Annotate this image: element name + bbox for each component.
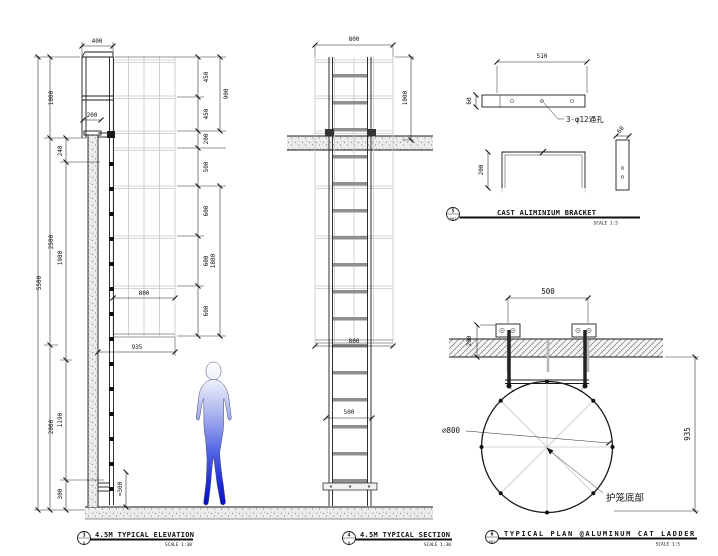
plan-ref-num: 6	[490, 532, 493, 538]
ground-strip	[85, 507, 433, 519]
section-title: 4.5M TYPICAL SECTION	[360, 531, 450, 539]
elevation-scale: SCALE 1:30	[165, 542, 192, 548]
dim-bottom-rung: ≈300	[117, 481, 124, 496]
section-cage-geometry	[315, 57, 393, 343]
bracket-scale: SCALE 1:5	[594, 221, 619, 227]
plan-cage-geometry	[480, 380, 615, 515]
dim-section-bottom-width: 800	[349, 338, 360, 345]
dim-hoop-c: 600	[203, 305, 210, 316]
plan-titleblock: 6 001 TYPICAL PLAN @ALUMINUM CAT LADDER …	[486, 530, 698, 548]
plan-ref-sheet: 001	[489, 539, 497, 544]
elevation-title: 4.5M TYPICAL ELEVATION	[95, 531, 194, 539]
dim-wall-upper: 1980	[57, 250, 64, 265]
dim-bracket-height: 200	[478, 164, 485, 175]
dim-drop-height: 935	[683, 427, 692, 441]
dim-cage-gap: 200	[203, 133, 210, 144]
dim-hoop-b: 600	[203, 255, 210, 266]
bracket-detail-view: 510 60 3-φ12通孔 200 60 5 001 CAST ALIMINI…	[447, 53, 641, 227]
dim-seg-bottom: 2000	[48, 419, 55, 434]
dim-bracket-length: 510	[537, 53, 548, 60]
human-figure	[196, 362, 231, 505]
section-titleblock: 4 0 4.5M TYPICAL SECTION SCALE 1:30	[343, 531, 453, 548]
section-dimensions: 800 1000 800 500	[315, 36, 414, 418]
dim-total-height: 5500	[36, 275, 43, 290]
section-view: 800 1000 800 500 4 0 4.5M TYPICAL SECTIO…	[287, 36, 452, 548]
plan-scale: SCALE 1:5	[656, 542, 681, 548]
dim-parapet: 240	[57, 145, 64, 156]
plan-wall-geometry	[449, 339, 663, 372]
dim-side-width: 60	[616, 125, 626, 135]
dim-hoop-first: 500	[203, 161, 210, 172]
dim-cage-width: 800	[139, 290, 150, 297]
plan-view: 500 200 935 ∅800 护笼底部 6 001 TYPICAL PLAN…	[442, 287, 699, 548]
bracket-ref-num: 5	[451, 209, 454, 215]
dim-wall-base: 300	[57, 488, 64, 499]
dim-wall-mid: 1190	[57, 412, 64, 427]
elevation-dimensions: 400 200 5500 1000 2500 2000 240	[34, 38, 230, 510]
plan-title: TYPICAL PLAN @ALUMINUM CAT LADDER	[504, 530, 696, 538]
bracket-title: CAST ALIMINIUM BRACKET	[497, 209, 596, 217]
dim-top-width: 400	[92, 38, 103, 45]
bracket-titleblock: 5 001 CAST ALIMINIUM BRACKET SCALE 1:5	[447, 208, 641, 227]
dim-above-slab: 1000	[402, 90, 409, 105]
plan-dimensions: 500 200 935 ∅800 护笼底部	[442, 287, 699, 511]
section-scale: SCALE 1:30	[424, 542, 451, 548]
bracket-dimensions: 510 60 3-φ12通孔 200 60	[466, 53, 629, 188]
elevation-titleblock: 3 0 4.5M TYPICAL ELEVATION SCALE 1:30	[78, 531, 195, 548]
dim-cage-top1: 450	[203, 71, 210, 82]
elevation-view: 400 200 5500 1000 2500 2000 240	[34, 38, 231, 548]
dim-seg-top: 1000	[48, 90, 55, 105]
dim-seg-mid: 2500	[48, 234, 55, 249]
bracket-hole-note: 3-φ12通孔	[566, 114, 604, 124]
section-ref-num: 4	[347, 533, 350, 539]
cage-bottom-label: 护笼底部	[606, 492, 644, 504]
dim-cage-diameter: ∅800	[442, 426, 461, 435]
dim-cage-offset: 935	[132, 344, 143, 351]
bracket-ref-sheet: 001	[450, 216, 458, 221]
dim-cage-top2: 450	[203, 108, 210, 119]
dim-top-offset: 200	[87, 112, 98, 119]
dim-hoop-total: 1800	[210, 253, 217, 268]
dim-bracket-spacing: 500	[541, 287, 555, 296]
dim-ladder-width: 500	[344, 409, 355, 416]
cad-drawing: 400 200 5500 1000 2500 2000 240	[0, 0, 718, 556]
dim-section-top-width: 800	[349, 36, 360, 43]
drawing-sheet: 400 200 5500 1000 2500 2000 240	[0, 0, 718, 556]
bracket-geometry	[482, 95, 629, 193]
dim-hoop-a: 600	[203, 205, 210, 216]
dim-wall-thickness: 200	[466, 335, 473, 346]
section-ladder-geometry	[323, 57, 377, 506]
elevation-ref-num: 3	[82, 533, 85, 539]
dim-cage-top-total: 900	[223, 88, 230, 99]
dim-bar-depth: 60	[466, 97, 473, 105]
